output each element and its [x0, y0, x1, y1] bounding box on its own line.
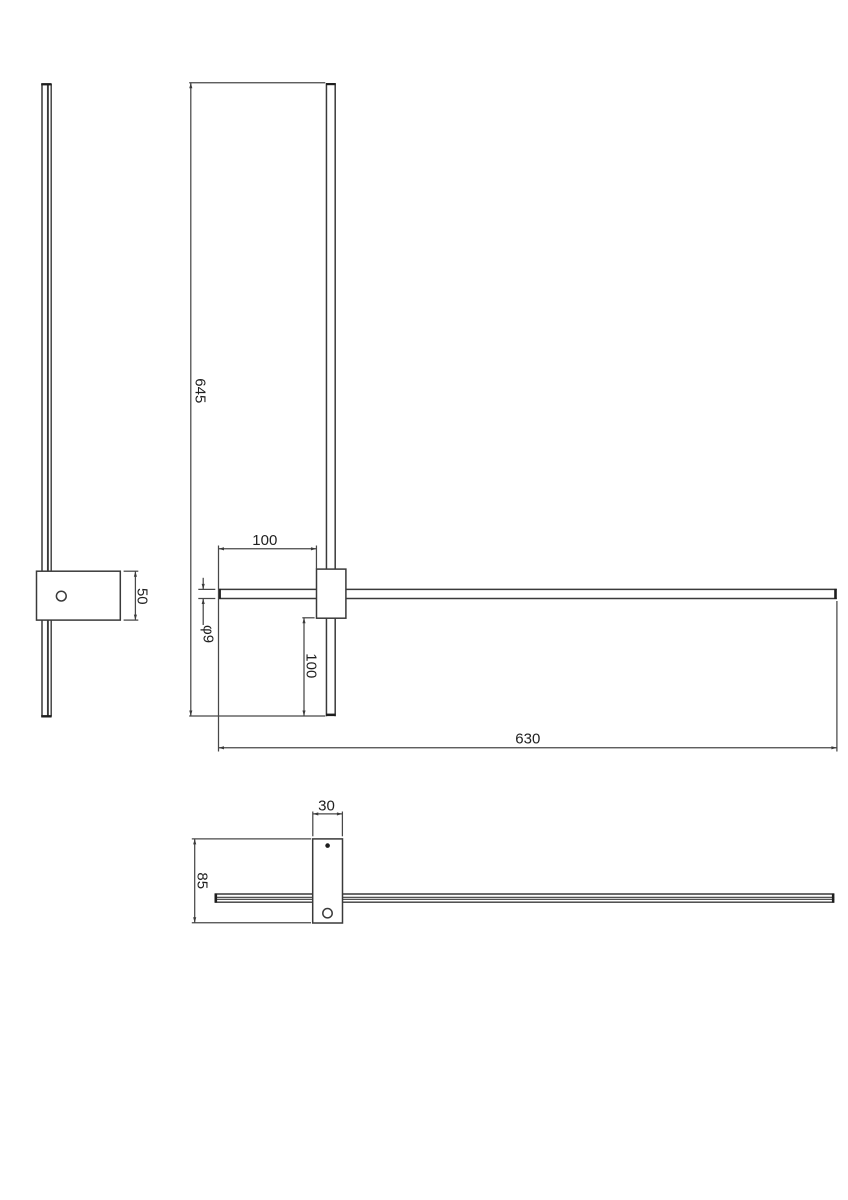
svg-text:85: 85 — [193, 872, 210, 889]
svg-text:φ9: φ9 — [199, 625, 216, 643]
svg-text:30: 30 — [318, 797, 335, 814]
svg-text:630: 630 — [515, 731, 540, 748]
svg-text:100: 100 — [252, 532, 277, 549]
svg-text:645: 645 — [191, 378, 208, 403]
svg-text:100: 100 — [302, 653, 319, 678]
svg-text:50: 50 — [134, 588, 151, 605]
